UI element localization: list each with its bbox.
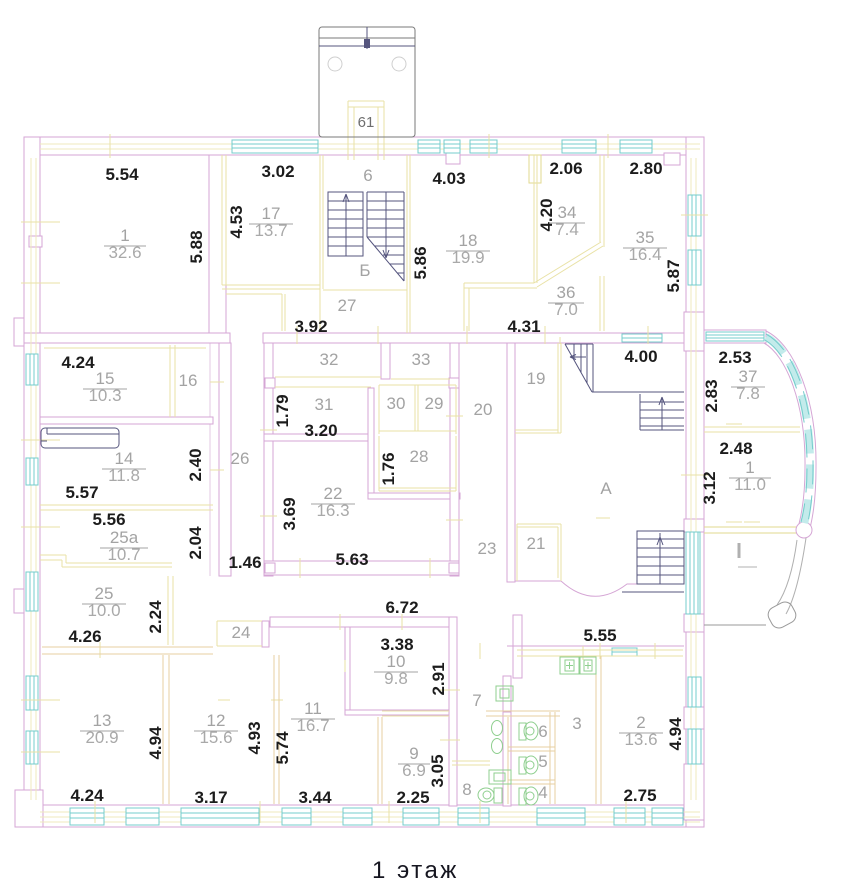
svg-text:10.0: 10.0 bbox=[87, 601, 120, 620]
svg-text:7.0: 7.0 bbox=[554, 300, 578, 319]
svg-text:31: 31 bbox=[315, 395, 334, 414]
svg-text:Б: Б bbox=[359, 261, 370, 280]
svg-text:5.56: 5.56 bbox=[92, 510, 125, 529]
svg-text:4.31: 4.31 bbox=[507, 317, 540, 336]
svg-text:2.75: 2.75 bbox=[623, 786, 656, 805]
svg-text:29: 29 bbox=[425, 394, 444, 413]
svg-text:3.92: 3.92 bbox=[294, 317, 327, 336]
svg-text:4: 4 bbox=[538, 783, 547, 802]
svg-text:33: 33 bbox=[412, 350, 431, 369]
svg-text:3.44: 3.44 bbox=[298, 788, 332, 807]
svg-text:6: 6 bbox=[363, 166, 372, 185]
svg-text:3.05: 3.05 bbox=[428, 754, 447, 787]
svg-text:4.94: 4.94 bbox=[666, 717, 685, 751]
svg-text:23: 23 bbox=[478, 539, 497, 558]
svg-text:2.24: 2.24 bbox=[146, 600, 165, 634]
svg-text:30: 30 bbox=[387, 394, 406, 413]
svg-text:3.20: 3.20 bbox=[304, 421, 337, 440]
svg-text:5.86: 5.86 bbox=[411, 246, 430, 279]
svg-text:2.80: 2.80 bbox=[629, 159, 662, 178]
svg-text:5.63: 5.63 bbox=[335, 550, 368, 569]
svg-text:16.3: 16.3 bbox=[316, 501, 349, 520]
svg-text:5.57: 5.57 bbox=[65, 483, 98, 502]
svg-text:16.4: 16.4 bbox=[628, 245, 661, 264]
svg-text:2.83: 2.83 bbox=[702, 379, 721, 412]
svg-text:8: 8 bbox=[462, 780, 471, 799]
svg-text:3.17: 3.17 bbox=[194, 788, 227, 807]
svg-text:3: 3 bbox=[572, 714, 581, 733]
svg-text:27: 27 bbox=[338, 296, 357, 315]
svg-text:6: 6 bbox=[538, 722, 547, 741]
svg-text:19: 19 bbox=[527, 369, 546, 388]
svg-text:7.4: 7.4 bbox=[555, 220, 579, 239]
svg-text:26: 26 bbox=[231, 449, 250, 468]
svg-text:2.53: 2.53 bbox=[718, 348, 751, 367]
svg-text:21: 21 bbox=[527, 534, 546, 553]
svg-text:А: А bbox=[600, 479, 612, 498]
svg-text:13.6: 13.6 bbox=[624, 730, 657, 749]
svg-text:2.40: 2.40 bbox=[186, 448, 205, 481]
svg-text:10.7: 10.7 bbox=[107, 545, 140, 564]
svg-text:11.0: 11.0 bbox=[734, 475, 766, 494]
svg-text:4.93: 4.93 bbox=[245, 721, 264, 754]
svg-text:4.24: 4.24 bbox=[70, 786, 104, 805]
svg-text:10.3: 10.3 bbox=[88, 386, 121, 405]
svg-text:4.94: 4.94 bbox=[146, 726, 165, 760]
svg-text:4.03: 4.03 bbox=[432, 169, 465, 188]
svg-text:20.9: 20.9 bbox=[85, 728, 118, 747]
svg-text:2.91: 2.91 bbox=[429, 662, 448, 695]
svg-text:4.00: 4.00 bbox=[624, 347, 657, 366]
svg-text:3.69: 3.69 bbox=[280, 497, 299, 530]
svg-text:9.8: 9.8 bbox=[384, 669, 408, 688]
svg-text:3.12: 3.12 bbox=[700, 471, 719, 504]
svg-text:28: 28 bbox=[410, 447, 429, 466]
svg-text:61: 61 bbox=[358, 114, 375, 131]
svg-text:2.06: 2.06 bbox=[549, 159, 582, 178]
svg-text:15.6: 15.6 bbox=[199, 728, 232, 747]
svg-text:2.48: 2.48 bbox=[719, 439, 752, 458]
svg-text:2.04: 2.04 bbox=[186, 526, 205, 560]
svg-text:32.6: 32.6 bbox=[108, 243, 141, 262]
svg-text:32: 32 bbox=[320, 350, 339, 369]
svg-text:7.8: 7.8 bbox=[736, 384, 760, 403]
svg-text:7: 7 bbox=[472, 691, 481, 710]
svg-text:5.74: 5.74 bbox=[273, 731, 292, 765]
svg-text:1 этаж: 1 этаж bbox=[372, 857, 459, 884]
svg-text:11.8: 11.8 bbox=[108, 466, 140, 485]
svg-text:16.7: 16.7 bbox=[296, 716, 329, 735]
svg-text:5.88: 5.88 bbox=[187, 230, 206, 263]
svg-text:13.7: 13.7 bbox=[254, 221, 287, 240]
svg-text:2.25: 2.25 bbox=[396, 788, 429, 807]
svg-text:4.53: 4.53 bbox=[227, 205, 246, 238]
svg-text:4.20: 4.20 bbox=[537, 198, 556, 231]
svg-text:3.02: 3.02 bbox=[261, 162, 294, 181]
svg-text:4.26: 4.26 bbox=[68, 627, 101, 646]
svg-text:5.54: 5.54 bbox=[105, 165, 139, 184]
svg-text:19.9: 19.9 bbox=[451, 248, 484, 267]
svg-text:5.55: 5.55 bbox=[583, 626, 616, 645]
svg-text:4.24: 4.24 bbox=[61, 353, 95, 372]
svg-text:6.9: 6.9 bbox=[402, 761, 426, 780]
svg-text:1.46: 1.46 bbox=[228, 553, 261, 572]
svg-text:16: 16 bbox=[179, 371, 198, 390]
svg-text:20: 20 bbox=[474, 400, 493, 419]
svg-text:5: 5 bbox=[538, 752, 547, 771]
svg-text:1.79: 1.79 bbox=[273, 394, 292, 427]
svg-text:5.87: 5.87 bbox=[664, 259, 683, 292]
svg-text:6.72: 6.72 bbox=[385, 598, 418, 617]
svg-text:1.76: 1.76 bbox=[379, 452, 398, 485]
svg-text:24: 24 bbox=[232, 623, 251, 642]
